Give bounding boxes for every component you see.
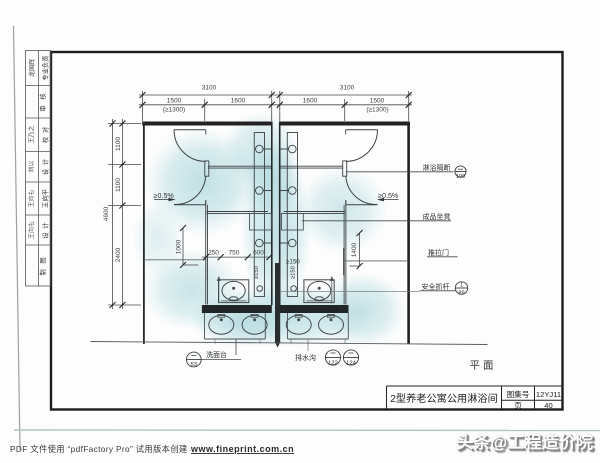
svg-text:1500: 1500 — [370, 98, 385, 105]
svg-text:成品坐凳: 成品坐凳 — [423, 212, 451, 221]
svg-text:≥0.5%: ≥0.5% — [378, 191, 399, 200]
svg-text:(≥1300): (≥1300) — [163, 107, 185, 114]
svg-text:页: 页 — [514, 401, 522, 410]
svg-text:推拉门: 推拉门 — [428, 248, 449, 257]
svg-text:王乃之: 王乃之 — [28, 125, 36, 143]
svg-text:平面: 平面 — [470, 360, 497, 372]
svg-text:1100: 1100 — [115, 137, 122, 151]
svg-text:专业负责: 专业负责 — [41, 55, 50, 80]
svg-text:PDF 文件使用 “pdfFactory Pro” 试用版本: PDF 文件使用 “pdfFactory Pro” 试用版本创建 — [10, 444, 188, 454]
svg-text:龙国辉: 龙国辉 — [28, 59, 36, 77]
svg-text:124: 124 — [346, 361, 356, 367]
svg-text:1600: 1600 — [231, 98, 246, 105]
svg-text:2400: 2400 — [115, 247, 122, 262]
svg-text:2型养老公寓公用淋浴间: 2型养老公寓公用淋浴间 — [390, 392, 498, 405]
svg-text:40: 40 — [544, 401, 552, 410]
svg-text:3100: 3100 — [202, 85, 217, 92]
svg-text:1: 1 — [460, 283, 463, 289]
svg-text:审 核: 审 核 — [38, 91, 47, 111]
svg-text:1400: 1400 — [351, 242, 358, 257]
svg-text:制 图: 制 图 — [38, 255, 47, 275]
svg-text:12YJ11: 12YJ11 — [536, 390, 561, 399]
svg-text:淋浴隔断: 淋浴隔断 — [423, 163, 451, 172]
svg-text:≥150: ≥150 — [291, 266, 297, 279]
svg-text:刘以: 刘以 — [28, 160, 36, 172]
svg-text:1000: 1000 — [176, 239, 183, 254]
svg-text:122: 122 — [328, 361, 338, 367]
svg-text:王向平: 王向平 — [41, 189, 50, 208]
svg-text:600: 600 — [253, 250, 264, 257]
svg-text:≥0.5%: ≥0.5% — [154, 191, 175, 200]
svg-text:≥150: ≥150 — [254, 266, 260, 279]
svg-text:图集号: 图集号 — [507, 389, 530, 399]
svg-text:750: 750 — [229, 250, 240, 257]
svg-text:53: 53 — [191, 362, 197, 368]
svg-text:洗面台: 洗面台 — [206, 350, 227, 359]
svg-text:1500: 1500 — [167, 98, 182, 105]
svg-text:www.fineprint.com.cn: www.fineprint.com.cn — [190, 444, 294, 454]
svg-text:安全抓杆: 安全抓杆 — [422, 282, 450, 291]
svg-text:设 计: 设 计 — [41, 158, 50, 175]
svg-text:4600: 4600 — [103, 206, 110, 221]
svg-text:1600: 1600 — [303, 98, 318, 105]
svg-text:3100: 3100 — [340, 85, 355, 92]
svg-text:89: 89 — [458, 291, 464, 297]
svg-text:排水沟: 排水沟 — [295, 353, 316, 362]
svg-text:250: 250 — [208, 250, 219, 257]
svg-text:设 计: 设 计 — [41, 221, 50, 238]
svg-text:王向も: 王向も — [28, 189, 36, 207]
svg-text:109: 109 — [456, 174, 465, 180]
svg-text:校 对: 校 对 — [41, 126, 50, 143]
svg-text:≥150: ≥150 — [286, 259, 300, 266]
svg-text:(≥1300): (≥1300) — [366, 107, 388, 114]
svg-text:王向も: 王向も — [28, 221, 36, 239]
svg-text:1100: 1100 — [115, 178, 122, 192]
